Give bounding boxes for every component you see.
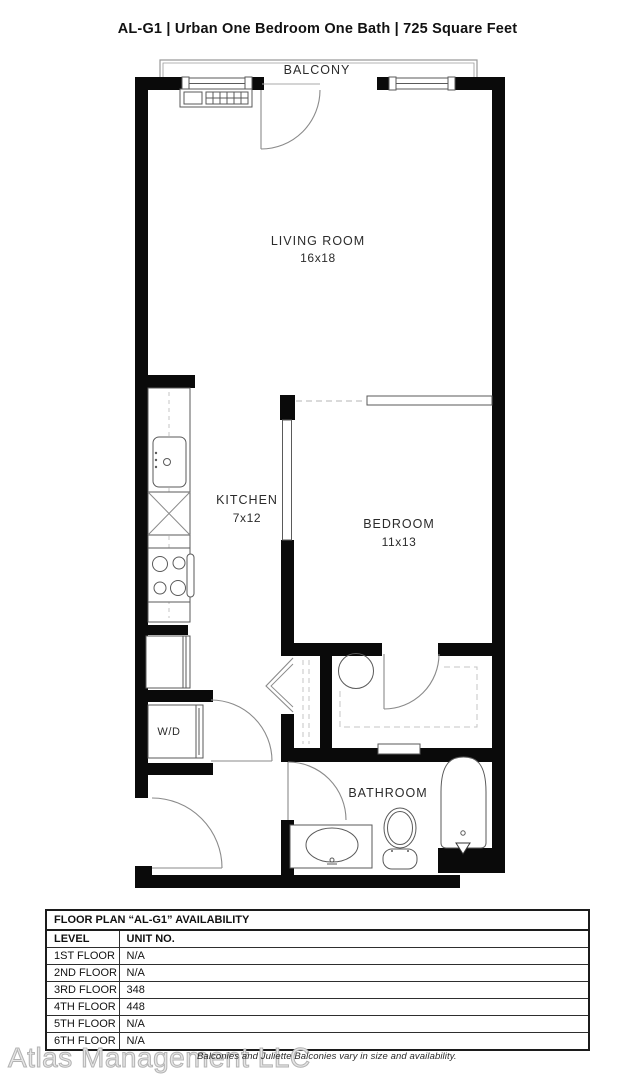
walkin-closet-door-icon: [384, 654, 439, 709]
level-cell: 3RD FLOOR: [46, 982, 119, 999]
water-heater-icon: [339, 654, 374, 689]
refrigerator-icon: [146, 636, 190, 688]
level-cell: 4TH FLOOR: [46, 999, 119, 1016]
page-title: AL-G1 | Urban One Bedroom One Bath | 725…: [0, 21, 635, 37]
wall-niche-icon: [378, 744, 420, 754]
unit-cell: N/A: [119, 948, 589, 965]
pocket-door-panel-icon: [283, 420, 292, 540]
wd-closet-door-icon: [211, 700, 272, 761]
dishwasher-icon: [148, 492, 190, 535]
floor-plan-page: AL-G1 | Urban One Bedroom One Bath | 725…: [0, 0, 635, 1080]
entry-door-icon: [152, 798, 222, 868]
unit-cell: 348: [119, 982, 589, 999]
bathroom-label: BATHROOM: [348, 786, 427, 800]
bedroom-label: BEDROOM: [363, 517, 435, 531]
disclaimer-note: Balconies and Juliette Balconies vary in…: [197, 1051, 457, 1062]
sliding-bedroom-door-icon: [296, 396, 492, 405]
stove-icon: [148, 548, 194, 602]
column-header-unit-no: UNIT NO.: [119, 930, 589, 948]
table-row: 1ST FLOOR N/A: [46, 948, 589, 965]
living-room-label: LIVING ROOM: [271, 234, 365, 248]
baseboard-heater-icon: [180, 89, 252, 107]
living-room-dims: 16x18: [300, 251, 336, 265]
vanity-sink-icon: [290, 825, 372, 868]
availability-table-title: FLOOR PLAN “AL-G1” AVAILABILITY: [46, 910, 589, 930]
bifold-closet-door-icon: [266, 658, 293, 712]
availability-table: FLOOR PLAN “AL-G1” AVAILABILITY LEVEL UN…: [45, 909, 590, 1051]
kitchen-sink-icon: [153, 437, 186, 487]
level-cell: 2ND FLOOR: [46, 965, 119, 982]
floor-plan-drawing: BALCONY: [0, 50, 635, 905]
kitchen-label: KITCHEN: [216, 493, 278, 507]
table-row: 5TH FLOOR N/A: [46, 1016, 589, 1033]
balcony-label: BALCONY: [284, 63, 351, 77]
toilet-icon: [383, 808, 417, 869]
level-cell: 5TH FLOOR: [46, 1016, 119, 1033]
table-row: 4TH FLOOR 448: [46, 999, 589, 1016]
kitchen-dims: 7x12: [233, 511, 261, 525]
table-row: 2ND FLOOR N/A: [46, 965, 589, 982]
balcony-door-icon: [261, 84, 320, 149]
bedroom-dims: 11x13: [382, 535, 417, 549]
bathtub-icon: [441, 757, 486, 854]
bathroom-door-icon: [288, 762, 346, 820]
column-header-level: LEVEL: [46, 930, 119, 948]
unit-cell: N/A: [119, 965, 589, 982]
level-cell: 1ST FLOOR: [46, 948, 119, 965]
washer-dryer-label: W/D: [157, 726, 180, 738]
table-row: 3RD FLOOR 348: [46, 982, 589, 999]
unit-cell: N/A: [119, 1016, 589, 1033]
unit-cell: 448: [119, 999, 589, 1016]
